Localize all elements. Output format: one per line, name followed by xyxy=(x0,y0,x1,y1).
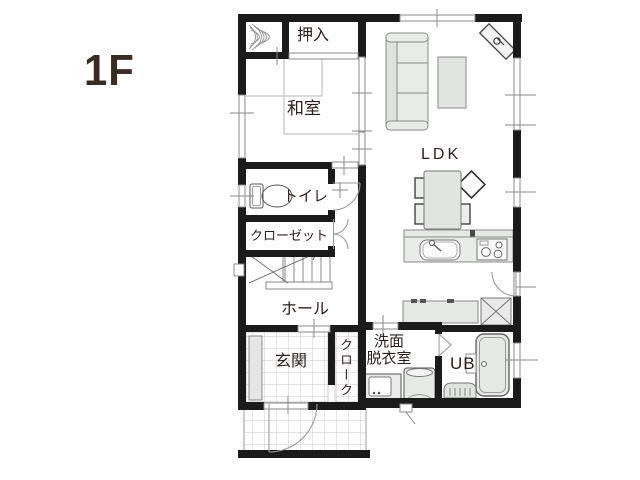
coffee-table xyxy=(438,57,466,108)
floorplan-canvas: 1F xyxy=(0,0,640,480)
tatami-lines xyxy=(246,58,358,134)
gas-stove-icon xyxy=(477,239,507,260)
entrance-porch xyxy=(244,408,366,452)
closet-double-door-arc xyxy=(333,219,348,249)
sliding-door xyxy=(373,323,398,329)
entrance-door-track xyxy=(264,403,308,409)
toilet-door-arc xyxy=(333,183,360,210)
sliding-door xyxy=(359,57,365,132)
room-label-washroom-line1: 洗面 xyxy=(360,333,418,350)
shoe-cabinet xyxy=(249,336,262,400)
sliding-door xyxy=(289,53,358,59)
room-label-washroom-line2: 脱衣室 xyxy=(360,350,418,367)
dining-table-set xyxy=(415,171,485,229)
room-label-genkan: 玄関 xyxy=(275,353,307,371)
room-label-toilet: トイレ xyxy=(283,188,328,205)
tv-board-icon xyxy=(480,24,515,59)
kitchen-back-door-arc xyxy=(492,272,516,296)
room-label-hall: ホール xyxy=(281,301,329,319)
room-label-washroom: 洗面 脱衣室 xyxy=(360,333,418,368)
kitchen-sink-icon xyxy=(420,240,460,260)
sofa xyxy=(386,33,428,130)
refrigerator-space xyxy=(481,298,511,325)
washing-machine-icon xyxy=(404,368,435,400)
room-label-bath: UB xyxy=(450,354,476,374)
window xyxy=(239,95,245,158)
vanity-icon xyxy=(364,374,401,399)
shower-ledge-icon xyxy=(444,383,476,398)
staircase xyxy=(249,253,332,289)
room-label-ldk: LDK xyxy=(421,146,461,164)
tokonoma-alcove xyxy=(249,24,270,50)
kitchen-cupboard xyxy=(403,299,478,323)
room-label-oshiire: 押入 xyxy=(297,27,329,45)
opening xyxy=(332,162,358,168)
bath-bifold-door xyxy=(439,334,451,356)
room-label-washitsu: 和室 xyxy=(287,99,321,119)
room-label-cloak: クローク xyxy=(337,338,352,402)
room-label-closet: クローゼット xyxy=(250,229,328,244)
door-opening xyxy=(514,272,520,296)
window xyxy=(514,58,520,130)
